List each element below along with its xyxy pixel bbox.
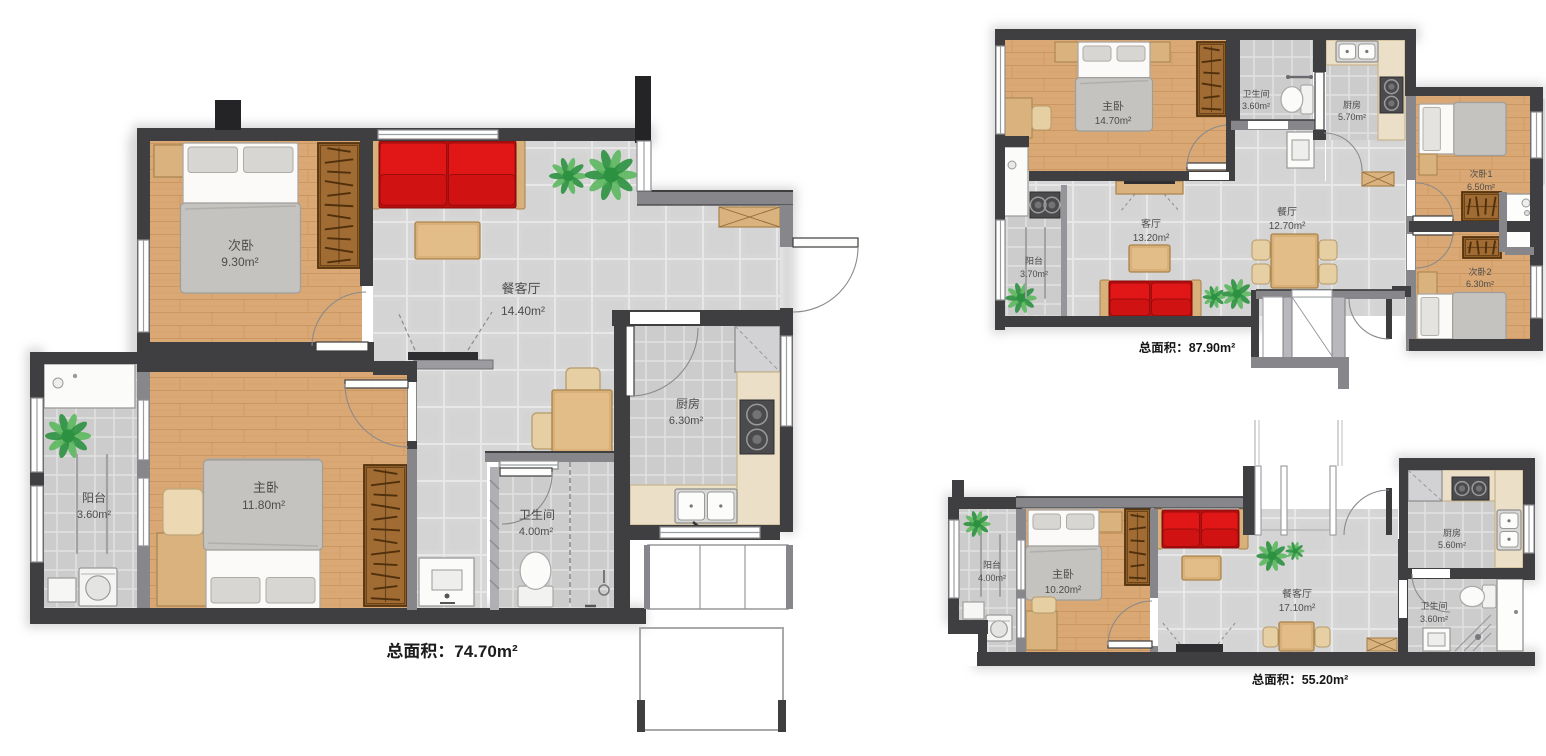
svg-text:3.60m²: 3.60m² [1242,101,1270,111]
svg-text:17.10m²: 17.10m² [1279,603,1316,614]
svg-text:1: 1 [1488,169,1493,179]
svg-text:74.70m²: 74.70m² [454,642,518,661]
svg-text:9.30m²: 9.30m² [221,255,258,269]
svg-text:11.80m²: 11.80m² [242,498,285,512]
svg-text:4.00m²: 4.00m² [519,526,554,538]
svg-text:4.00m²: 4.00m² [978,573,1006,583]
svg-text:5.70m²: 5.70m² [1338,112,1366,122]
svg-text:14.70m²: 14.70m² [1095,116,1132,127]
svg-text:5.60m²: 5.60m² [1438,540,1466,550]
svg-text:14.40m²: 14.40m² [501,304,545,318]
svg-text:6.30m²: 6.30m² [1466,279,1494,289]
svg-text:55.20m²: 55.20m² [1302,673,1349,687]
svg-text:12.70m²: 12.70m² [1269,221,1306,232]
svg-text:2: 2 [1487,267,1492,277]
svg-text:87.90m²: 87.90m² [1189,341,1236,355]
svg-text:6.50m²: 6.50m² [1467,182,1495,192]
svg-text:3.60m²: 3.60m² [77,509,112,521]
svg-text:6.30m²: 6.30m² [669,415,704,427]
svg-text:13.20m²: 13.20m² [1133,233,1170,244]
svg-text:10.20m²: 10.20m² [1045,585,1082,596]
svg-text:3.60m²: 3.60m² [1420,614,1448,624]
svg-text:3.70m²: 3.70m² [1020,269,1048,279]
